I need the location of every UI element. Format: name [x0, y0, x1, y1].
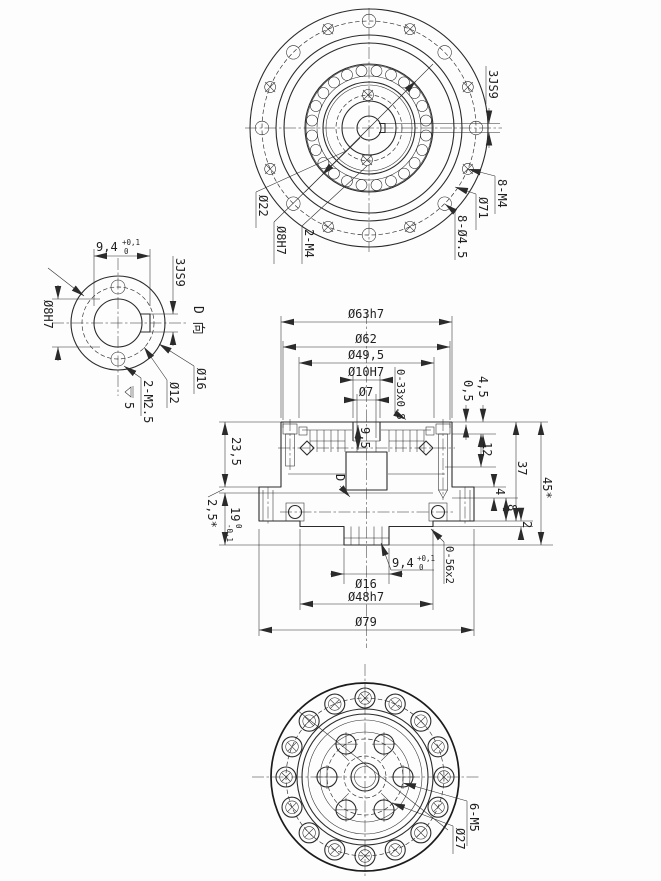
- dim-05: 0,5: [461, 380, 475, 402]
- dimensions-right: 0,5 4,5 12 4 8 2 37 45*: [389, 376, 554, 545]
- dim-45: 4,5: [476, 376, 490, 398]
- dim-12: 12: [480, 442, 494, 456]
- bottom-view: 6-M5 Ø27: [252, 664, 481, 878]
- cad-drawing: 3JS9 8-M4 Ø71 8-Ø4.5 Ø22 Ø8H7 2-M4: [0, 0, 661, 881]
- dim-94-tol-dn: 0: [124, 247, 129, 256]
- dim-25s: 2,5*: [205, 499, 219, 528]
- dim-o79: Ø79: [355, 615, 377, 629]
- dim-o62: Ø62: [355, 332, 377, 346]
- dim-95: 9,5: [358, 427, 372, 449]
- dim-94: 9,4: [96, 240, 118, 254]
- label-o8h7: Ø8H7: [274, 226, 288, 255]
- leader-6m5: 6-M5: [403, 783, 481, 846]
- bolt-right: [436, 419, 450, 500]
- view-arrow-d: D: [333, 474, 350, 497]
- dimension-d-width: 9,4 +0,1 0: [94, 238, 150, 306]
- dim-19-tol-dn: -0,1: [225, 524, 234, 542]
- top-view: 3JS9 8-M4 Ø71 8-Ø4.5 Ø22 Ø8H7 2-M4: [245, 8, 509, 264]
- dim-37: 37: [515, 461, 529, 475]
- dimension-95: 9,5: [358, 425, 372, 450]
- dim-o10: Ø10H7: [348, 365, 384, 379]
- label-view-d: D: [333, 474, 347, 481]
- dim-45s: 45*: [540, 477, 554, 499]
- label-d-2m25: 2-M2.5: [141, 380, 155, 423]
- leader-8o45: 8-Ø4.5: [445, 204, 469, 260]
- bolt-left: [283, 419, 297, 471]
- section-view: D 9,5 Ø63h7 Ø62 Ø49,5 Ø10H7: [205, 307, 554, 648]
- dimension-keyway-3js9: 3JS9: [385, 66, 500, 148]
- dim-2: 2: [520, 521, 534, 528]
- label-keyway: 3JS9: [486, 70, 500, 99]
- dim-94-tol-up: +0,1: [122, 238, 140, 247]
- label-8o45: 8-Ø4.5: [455, 215, 469, 258]
- label-2m4: 2-M4: [302, 229, 316, 258]
- dim-o48: Ø48h7: [348, 590, 384, 604]
- label-8m4: 8-M4: [495, 179, 509, 208]
- dim-d-o8h7: Ø8H7: [41, 300, 55, 329]
- dim-o63: Ø63h7: [348, 307, 384, 321]
- d-view: 9,4 +0,1 0 3JS9 Ø8H7 D 向 Ø16 Ø12 2-M2.5 …: [41, 238, 208, 423]
- leader-d-o16: Ø16: [159, 344, 208, 394]
- view-title-d: D 向: [190, 306, 206, 335]
- dim-235: 23,5: [229, 437, 243, 466]
- dim-19: 19: [228, 507, 242, 521]
- depth-symbol-icon: [125, 387, 131, 397]
- label-o22: Ø22: [256, 195, 270, 217]
- label-o71: Ø71: [476, 197, 490, 219]
- dim-4: 4: [493, 488, 507, 495]
- dim-94b-tol-dn: 0: [419, 563, 424, 572]
- label-oring-top: 0-33x0.8: [394, 367, 406, 420]
- label-6m5: 6-M5: [467, 803, 481, 832]
- label-d-o12: Ø12: [167, 382, 181, 404]
- dim-19-tol-up: 0: [234, 524, 243, 529]
- dim-d-keyway: 3JS9: [173, 258, 187, 287]
- dim-o16b: Ø16: [355, 577, 377, 591]
- dimension-d-keyway: 3JS9: [150, 256, 187, 346]
- dim-8: 8: [505, 504, 519, 511]
- leader-o22: Ø22: [256, 151, 346, 228]
- label-d-o16: Ø16: [194, 368, 208, 390]
- drawing-sheet: 3JS9 8-M4 Ø71 8-Ø4.5 Ø22 Ø8H7 2-M4: [0, 0, 661, 881]
- dim-oring-bottom: 0-56x2: [443, 546, 455, 584]
- dimension-o495: Ø49,5: [299, 348, 434, 418]
- dim-94b: 9,4: [392, 556, 414, 570]
- dim-94b-tol-up: +0,1: [417, 554, 435, 563]
- label-d-depth: 5: [122, 402, 136, 409]
- label-o27: Ø27: [453, 828, 467, 850]
- dim-o495: Ø49,5: [348, 348, 384, 362]
- dim-o7: Ø7: [359, 385, 373, 399]
- dim-oring-top: 0-33x0.8: [394, 369, 406, 420]
- leader-d-2m25: 2-M2.5 5: [122, 366, 155, 423]
